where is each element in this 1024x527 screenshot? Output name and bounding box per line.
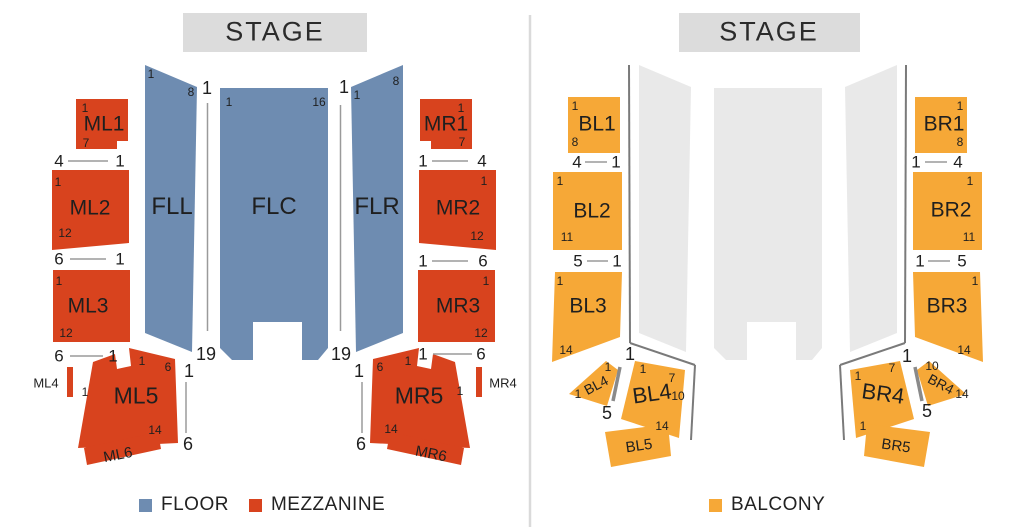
stage-right xyxy=(679,13,860,52)
seating-chart: STAGEFLLFLCFLRML1ML2ML3ML4ML5ML6MR1MR2MR… xyxy=(0,0,1024,527)
mezzanine-swatch-icon xyxy=(249,499,262,512)
balcony-wall-line xyxy=(629,65,630,343)
panel-floor-mezzanine xyxy=(52,13,496,465)
balcony-wall-line xyxy=(905,65,906,343)
section-ML4[interactable] xyxy=(67,367,73,397)
section-MR5[interactable] xyxy=(370,348,470,448)
section-FLR[interactable] xyxy=(351,65,403,352)
legend-item-mezzanine: MEZZANINE xyxy=(249,494,385,516)
section-ML2[interactable] xyxy=(52,170,129,250)
section-MR3[interactable] xyxy=(418,270,495,342)
balcony-wall-line xyxy=(840,365,844,440)
ghost-section-fll xyxy=(639,65,691,352)
legend-floor-mezzanine: FLOOR MEZZANINE xyxy=(139,496,385,514)
section-BL1[interactable] xyxy=(568,97,620,153)
section-MR1[interactable] xyxy=(420,99,472,149)
section-ML1[interactable] xyxy=(76,99,128,149)
section-FLL[interactable] xyxy=(145,65,197,352)
balcony-wall-line xyxy=(691,365,695,440)
legend-label-floor: FLOOR xyxy=(161,494,229,516)
section-MR4[interactable] xyxy=(476,367,482,397)
section-BR1[interactable] xyxy=(915,97,967,153)
balcony-swatch-icon xyxy=(709,499,722,512)
section-FLC[interactable] xyxy=(220,88,328,360)
section-BR5[interactable] xyxy=(864,424,930,467)
seating-chart-canvas xyxy=(0,0,1024,527)
section-BL3[interactable] xyxy=(552,272,622,362)
floor-swatch-icon xyxy=(139,499,152,512)
section-BL2[interactable] xyxy=(553,172,622,250)
section-BR3[interactable] xyxy=(913,272,983,362)
section-BR2[interactable] xyxy=(913,172,982,250)
balcony-wall-line xyxy=(840,343,905,365)
section-ML5[interactable] xyxy=(78,348,178,448)
section-ML3[interactable] xyxy=(53,270,130,342)
section-BL4-small[interactable] xyxy=(569,361,618,406)
legend-item-floor: FLOOR xyxy=(139,494,229,516)
legend-item-balcony: BALCONY xyxy=(709,494,825,516)
legend-balcony: BALCONY xyxy=(709,496,825,514)
stage-left xyxy=(183,13,367,52)
section-BL5[interactable] xyxy=(605,424,671,467)
section-BR4-small[interactable] xyxy=(917,361,966,406)
legend-label-balcony: BALCONY xyxy=(731,494,825,516)
legend-label-mezzanine: MEZZANINE xyxy=(271,494,385,516)
section-MR2[interactable] xyxy=(419,170,496,250)
ghost-section-flr xyxy=(845,65,897,352)
panel-balcony xyxy=(552,13,983,467)
ghost-section-flc xyxy=(714,88,822,360)
